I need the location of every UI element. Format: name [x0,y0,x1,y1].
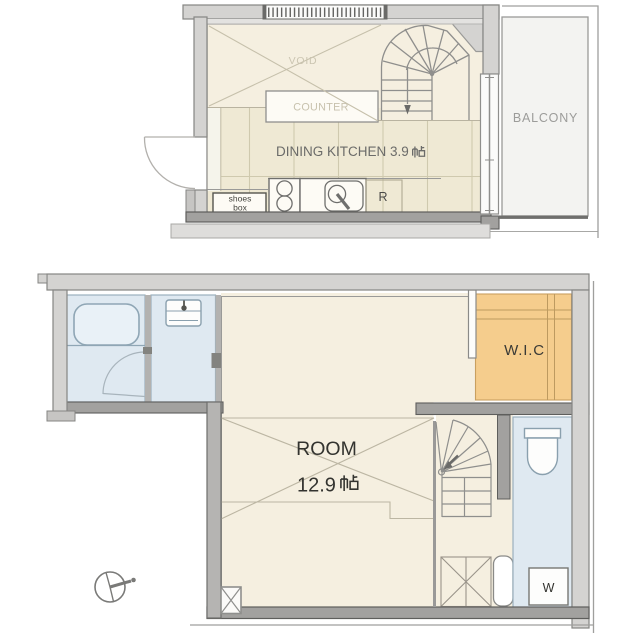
svg-text:VOID: VOID [289,55,318,67]
svg-text:W: W [543,581,555,595]
svg-text:R: R [378,190,387,204]
svg-text:ROOM: ROOM [296,438,357,460]
svg-text:12.9: 12.9 [297,475,336,497]
svg-text:DINING KITCHEN 3.9: DINING KITCHEN 3.9 [276,144,409,159]
svg-text:COUNTER: COUNTER [293,102,348,114]
svg-text:BALCONY: BALCONY [513,111,578,125]
svg-text:W.I.C: W.I.C [504,342,545,359]
svg-text:box: box [233,203,247,213]
